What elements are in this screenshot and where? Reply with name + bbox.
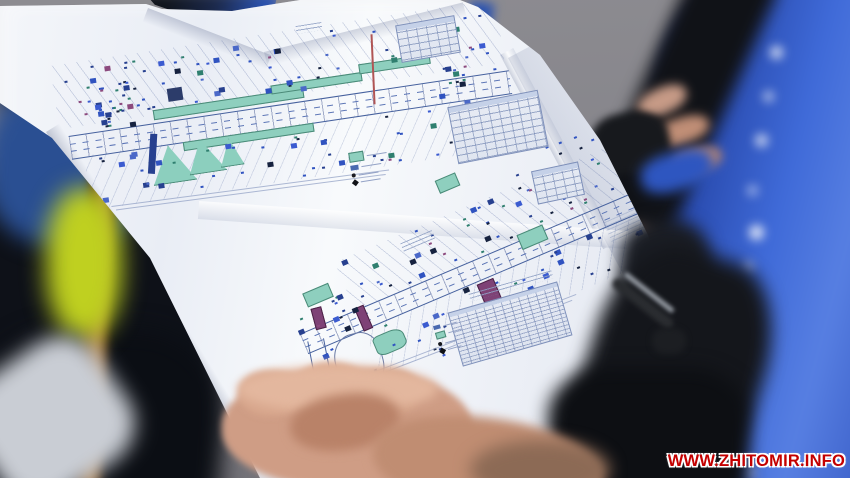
dark-block-symbol — [167, 87, 184, 102]
plan-symbols — [292, 314, 296, 317]
hi-vis-vest — [46, 188, 122, 338]
plan-symbols — [499, 161, 503, 164]
site-watermark: WWW.ZHITOMIR.INFO — [668, 452, 845, 471]
photo-scene: WWW.ZHITOMIR.INFO — [0, 0, 850, 478]
green-patch — [302, 283, 334, 308]
plan-symbols — [331, 265, 335, 268]
plan-symbols — [74, 90, 77, 92]
sunglasses-hinge — [652, 328, 686, 354]
crosswalk — [310, 306, 326, 330]
plan-symbols — [61, 70, 64, 72]
green-patch — [435, 172, 461, 193]
